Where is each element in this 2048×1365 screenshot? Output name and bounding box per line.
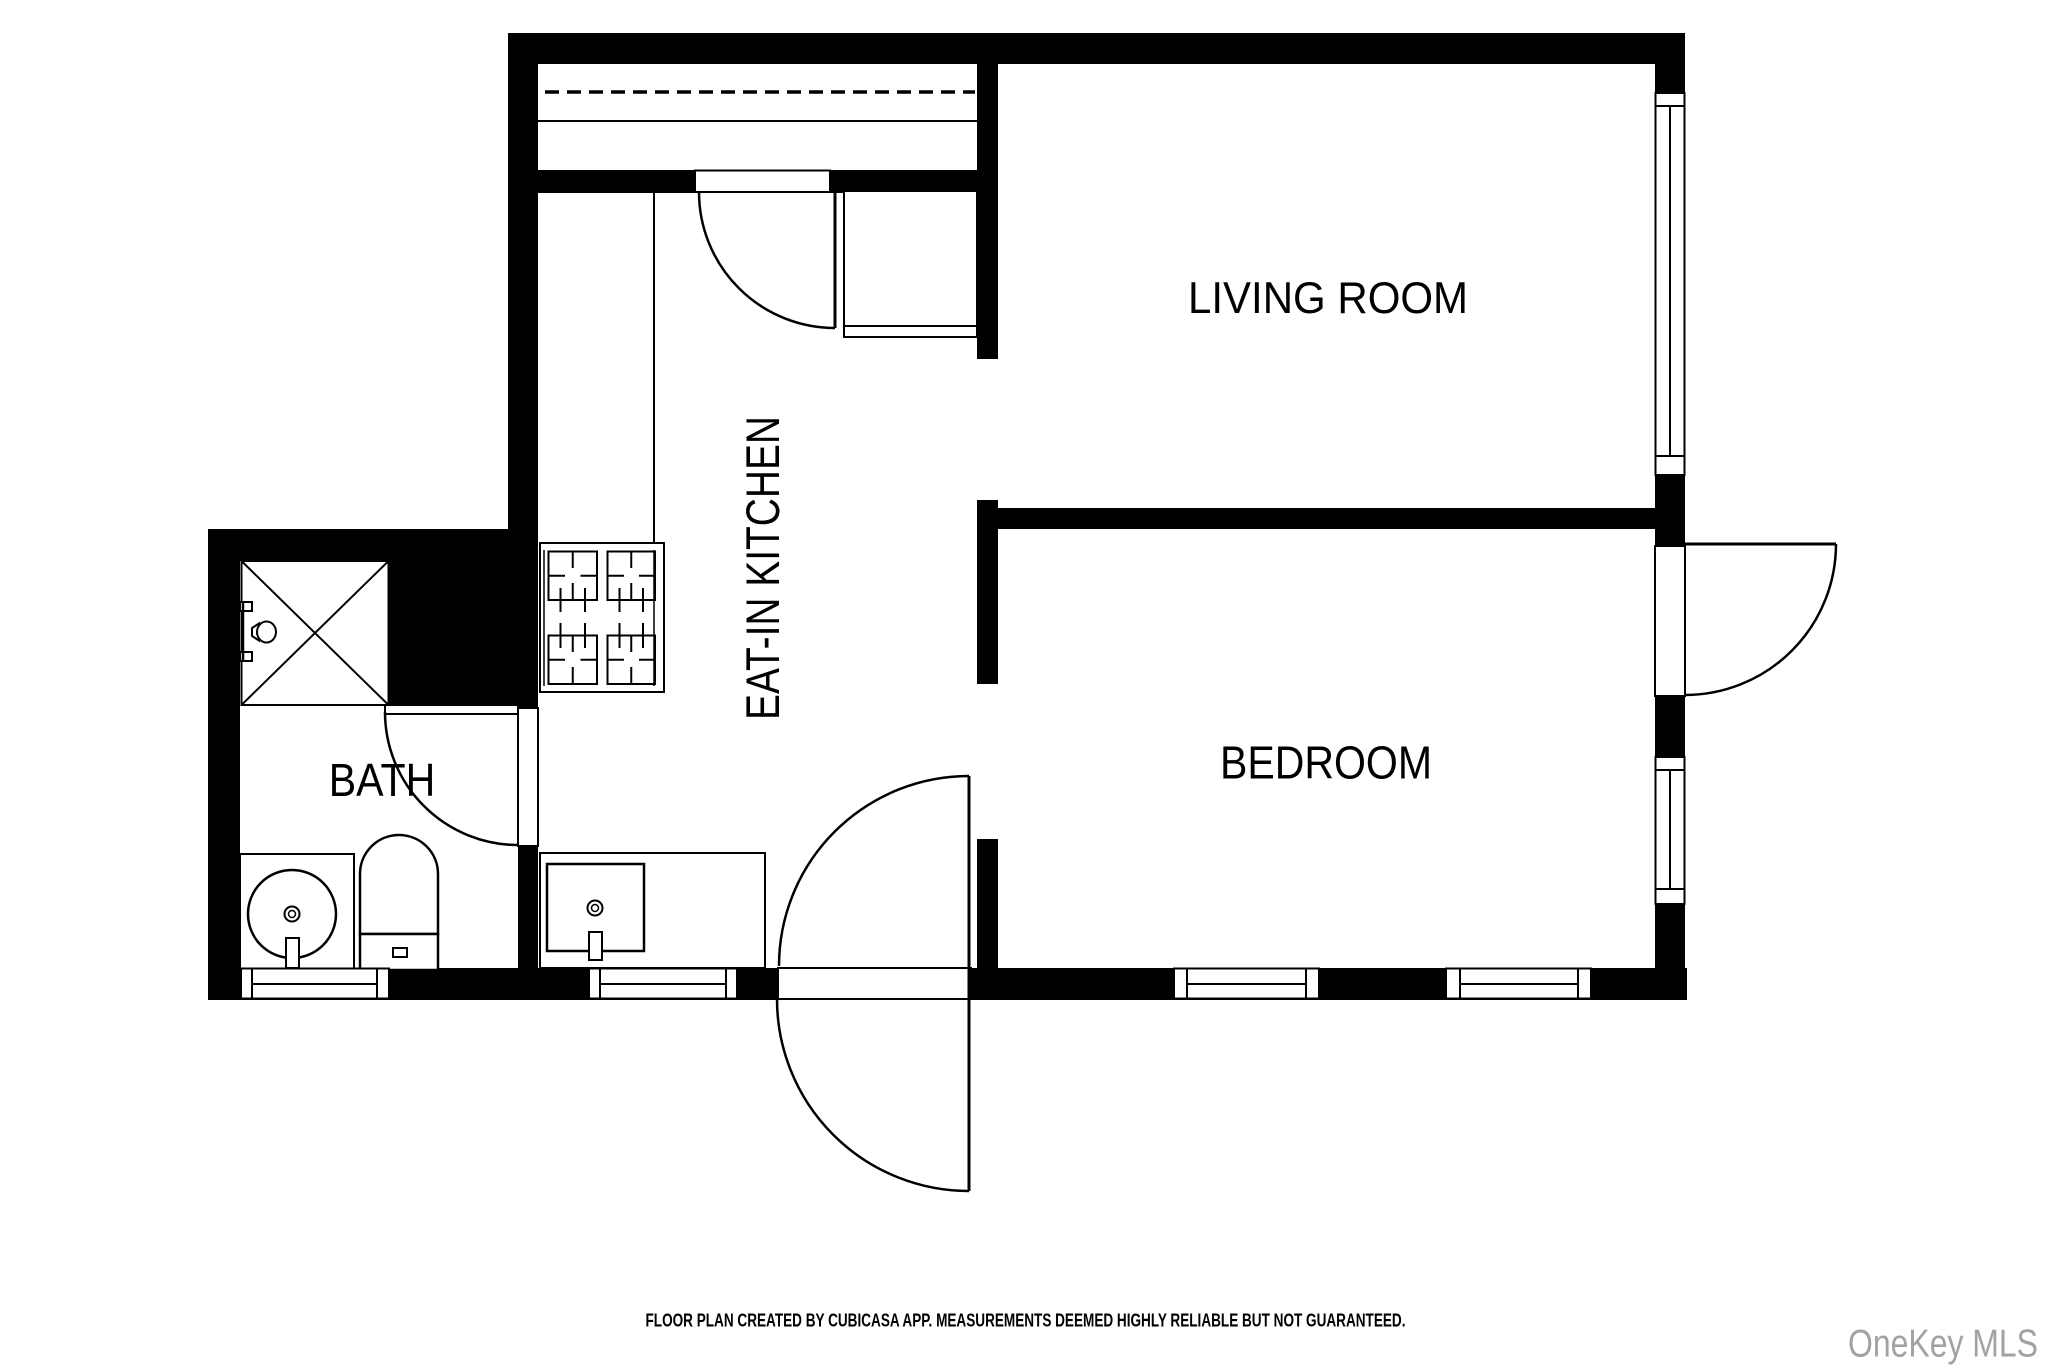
- svg-text:BEDROOM: BEDROOM: [1220, 737, 1432, 789]
- svg-text:LIVING ROOM: LIVING ROOM: [1188, 274, 1468, 323]
- svg-text:OneKey MLS: OneKey MLS: [1848, 1323, 2038, 1365]
- svg-text:BATH: BATH: [329, 754, 436, 806]
- svg-text:FLOOR PLAN CREATED BY CUBICASA: FLOOR PLAN CREATED BY CUBICASA APP. MEAS…: [646, 1309, 1406, 1330]
- svg-text:EAT-IN KITCHEN: EAT-IN KITCHEN: [737, 416, 790, 720]
